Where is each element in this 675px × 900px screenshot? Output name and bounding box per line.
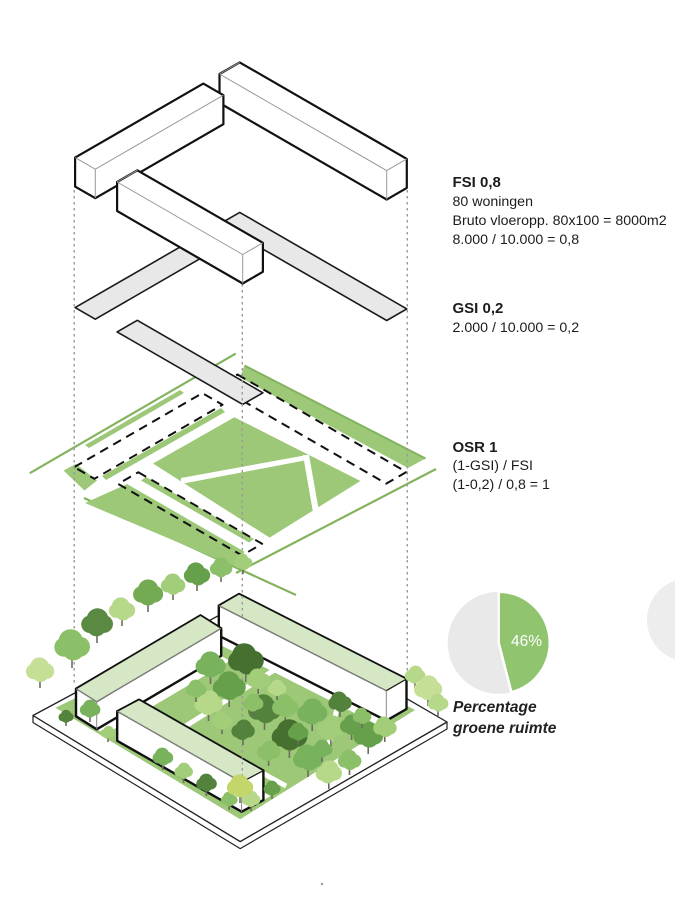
- svg-text:2.000 / 10.000 = 0,2: 2.000 / 10.000 = 0,2: [453, 320, 580, 336]
- svg-text:OSR 1: OSR 1: [453, 439, 498, 456]
- svg-text:8.000 / 10.000 = 0,8: 8.000 / 10.000 = 0,8: [453, 232, 580, 248]
- svg-text:46%: 46%: [511, 633, 542, 650]
- svg-text:80 woningen: 80 woningen: [453, 194, 533, 210]
- svg-text:(1-GSI) / FSI: (1-GSI) / FSI: [453, 458, 533, 474]
- svg-text:Percentage: Percentage: [453, 699, 537, 716]
- svg-text:Bruto vloeropp. 80x100 = 8000m: Bruto vloeropp. 80x100 = 8000m2: [453, 213, 667, 229]
- svg-text:groene ruimte: groene ruimte: [452, 720, 557, 737]
- svg-text:FSI 0,8: FSI 0,8: [453, 174, 501, 191]
- svg-text:(1-0,2) / 0,8 = 1: (1-0,2) / 0,8 = 1: [453, 477, 551, 493]
- svg-text:GSI 0,2: GSI 0,2: [453, 300, 504, 317]
